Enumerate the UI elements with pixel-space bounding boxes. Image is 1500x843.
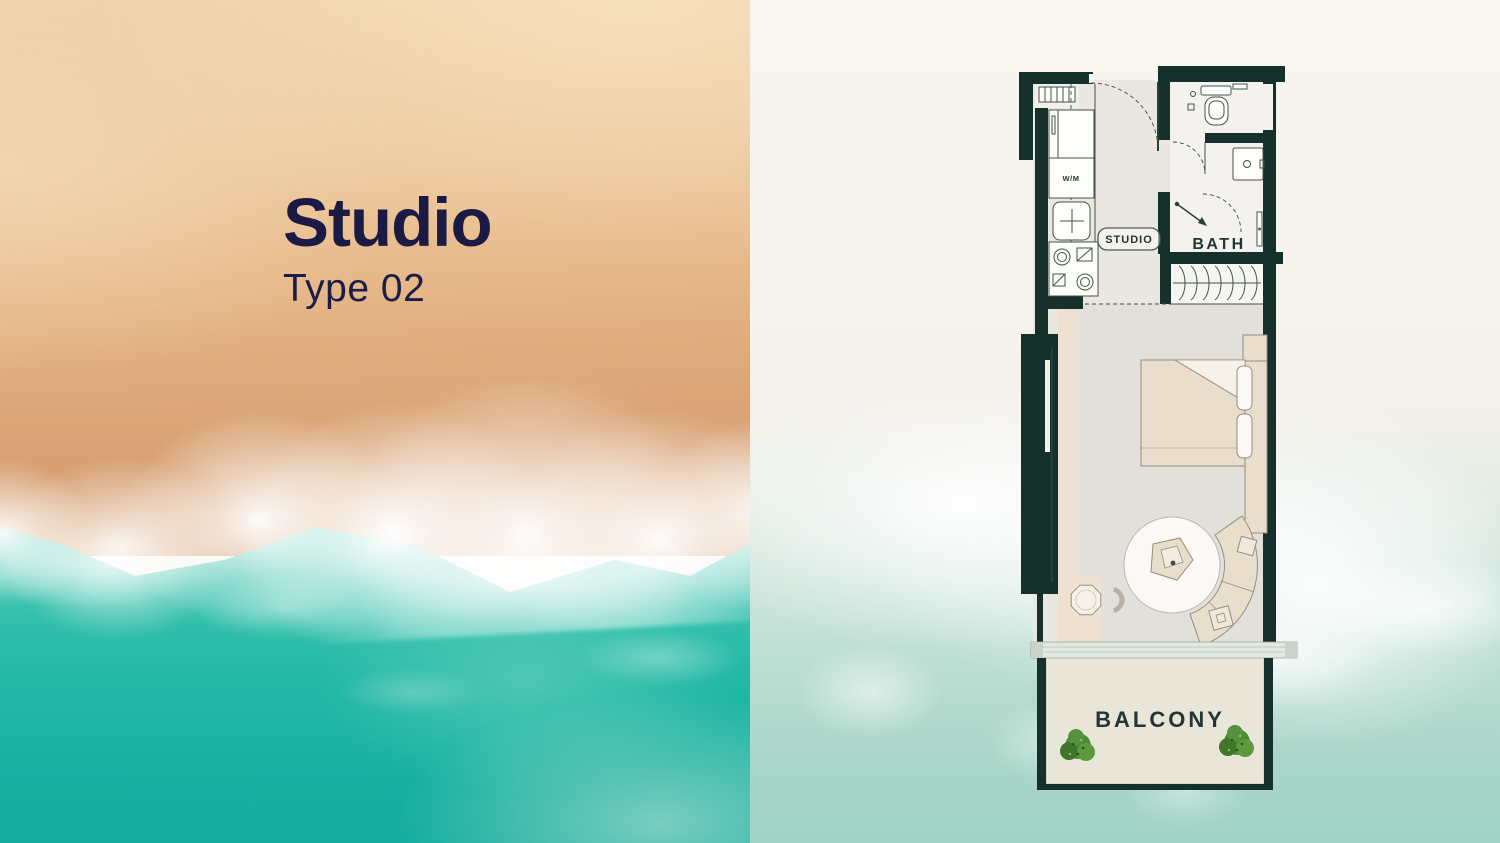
washing-machine: W/M: [1049, 158, 1094, 198]
floor-plan-svg: W/M: [1005, 52, 1305, 807]
kitchen: W/M: [1049, 84, 1098, 296]
stove: [1049, 242, 1098, 296]
foam-streaks: [0, 506, 750, 843]
fridge: [1049, 110, 1094, 158]
small-table: [1237, 536, 1257, 556]
page-subtitle: Type 02: [283, 267, 492, 311]
pillow: [1237, 366, 1252, 410]
washer-label: W/M: [1063, 174, 1080, 183]
page-title: Studio: [283, 188, 492, 257]
utility-niche: [1035, 84, 1079, 108]
pillow: [1237, 414, 1252, 458]
sliding-glass-door: [1031, 642, 1297, 658]
bath-room-label: BATH: [1192, 236, 1245, 253]
wash-basin-icon: [1233, 148, 1264, 180]
floor-plan: W/M: [1005, 52, 1305, 807]
studio-room-label: STUDIO: [1105, 234, 1153, 246]
towel-rail-icon: [1257, 212, 1262, 246]
balcony-label: BALCONY: [1095, 707, 1225, 732]
kitchen-sink: [1053, 202, 1090, 240]
bath-niche: [1251, 84, 1273, 130]
title-block: Studio Type 02: [283, 188, 492, 311]
bedside-table: [1243, 335, 1267, 361]
beach-photo: [0, 0, 750, 843]
